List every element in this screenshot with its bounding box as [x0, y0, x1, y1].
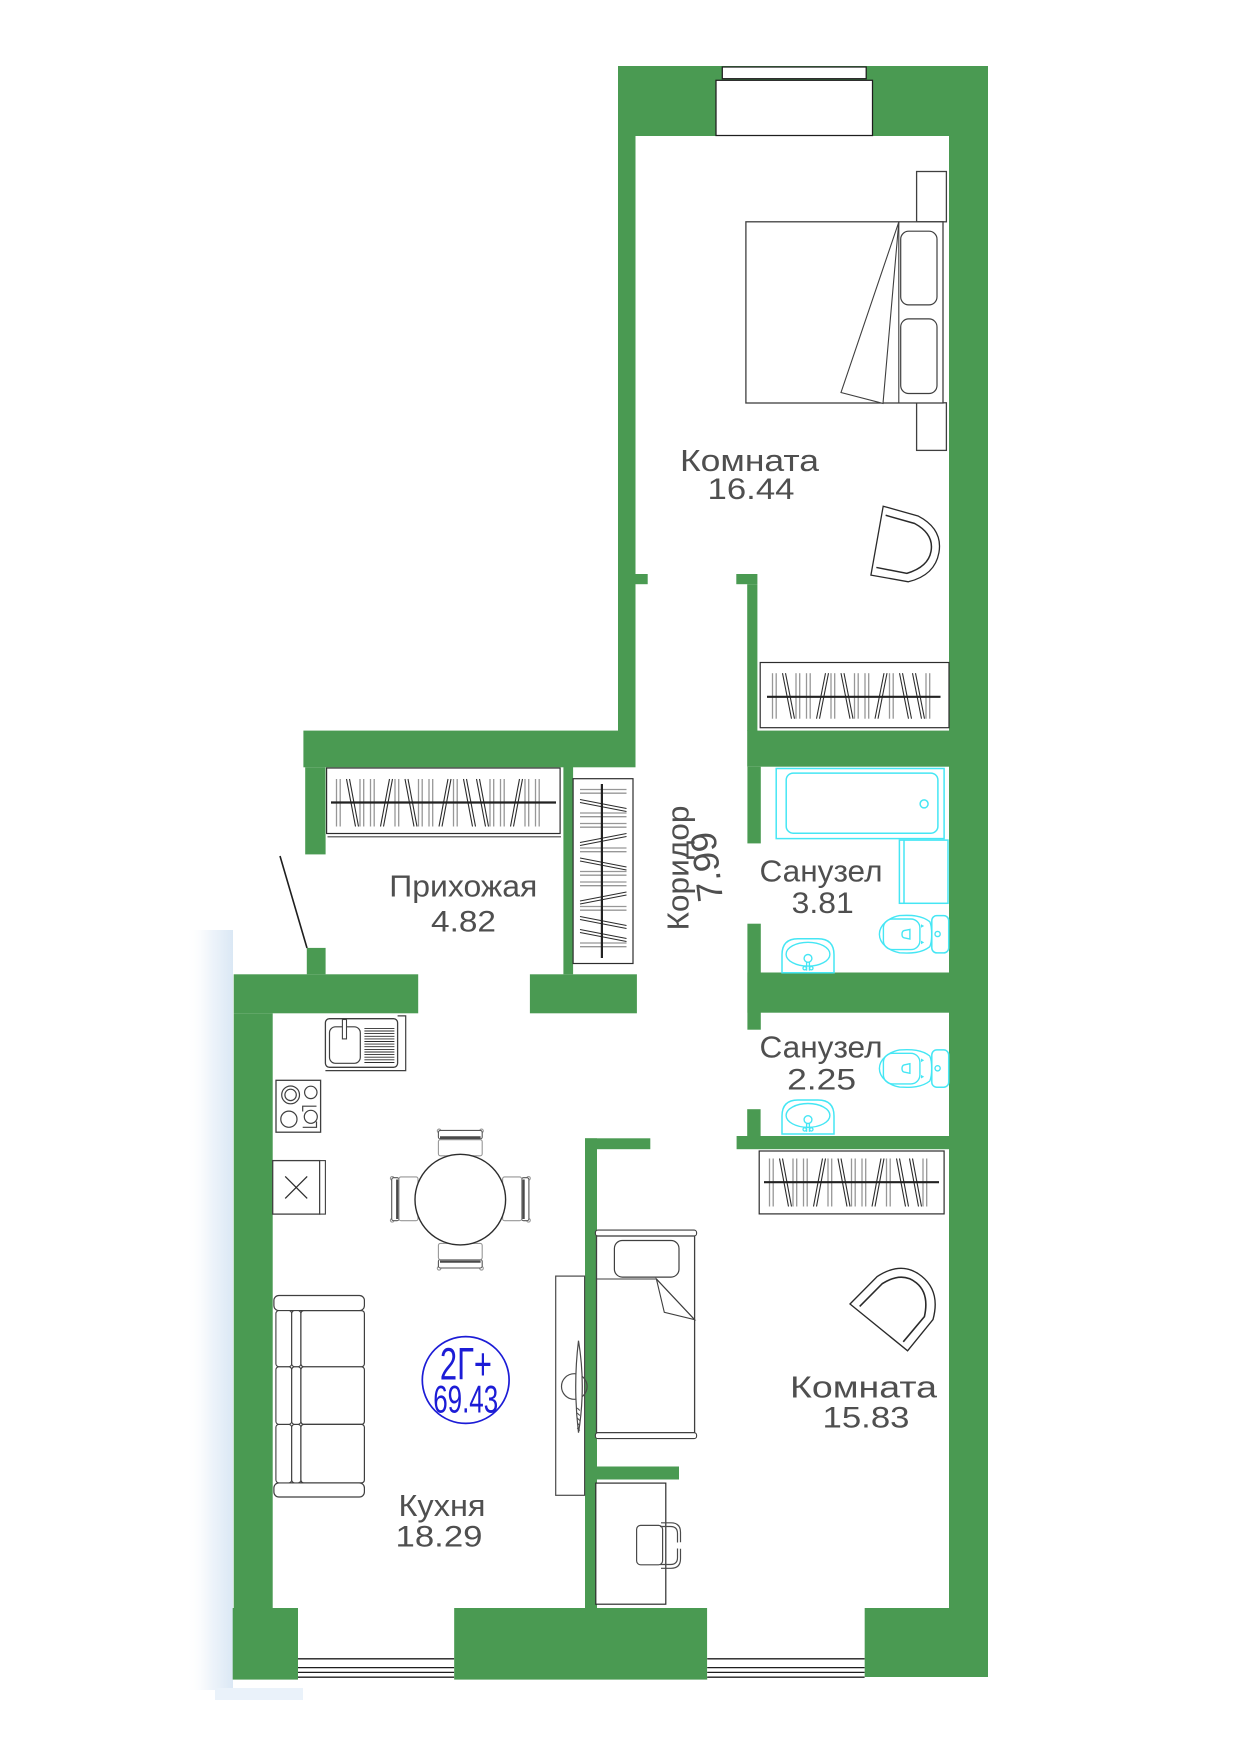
- svg-text:3.81: 3.81: [792, 887, 854, 920]
- svg-text:2.25: 2.25: [787, 1064, 856, 1097]
- svg-text:Санузел: Санузел: [760, 853, 883, 888]
- svg-text:18.29: 18.29: [396, 1520, 483, 1553]
- svg-text:4.82: 4.82: [431, 905, 496, 938]
- svg-text:Кухня: Кухня: [399, 1488, 486, 1523]
- svg-text:Санузел: Санузел: [760, 1029, 883, 1064]
- svg-text:7.99: 7.99: [682, 830, 731, 904]
- svg-text:15.83: 15.83: [823, 1401, 910, 1434]
- svg-text:Прихожая: Прихожая: [389, 868, 537, 903]
- svg-text:69.43: 69.43: [433, 1379, 498, 1422]
- svg-text:Комната: Комната: [790, 1369, 938, 1404]
- svg-text:16.44: 16.44: [708, 473, 795, 506]
